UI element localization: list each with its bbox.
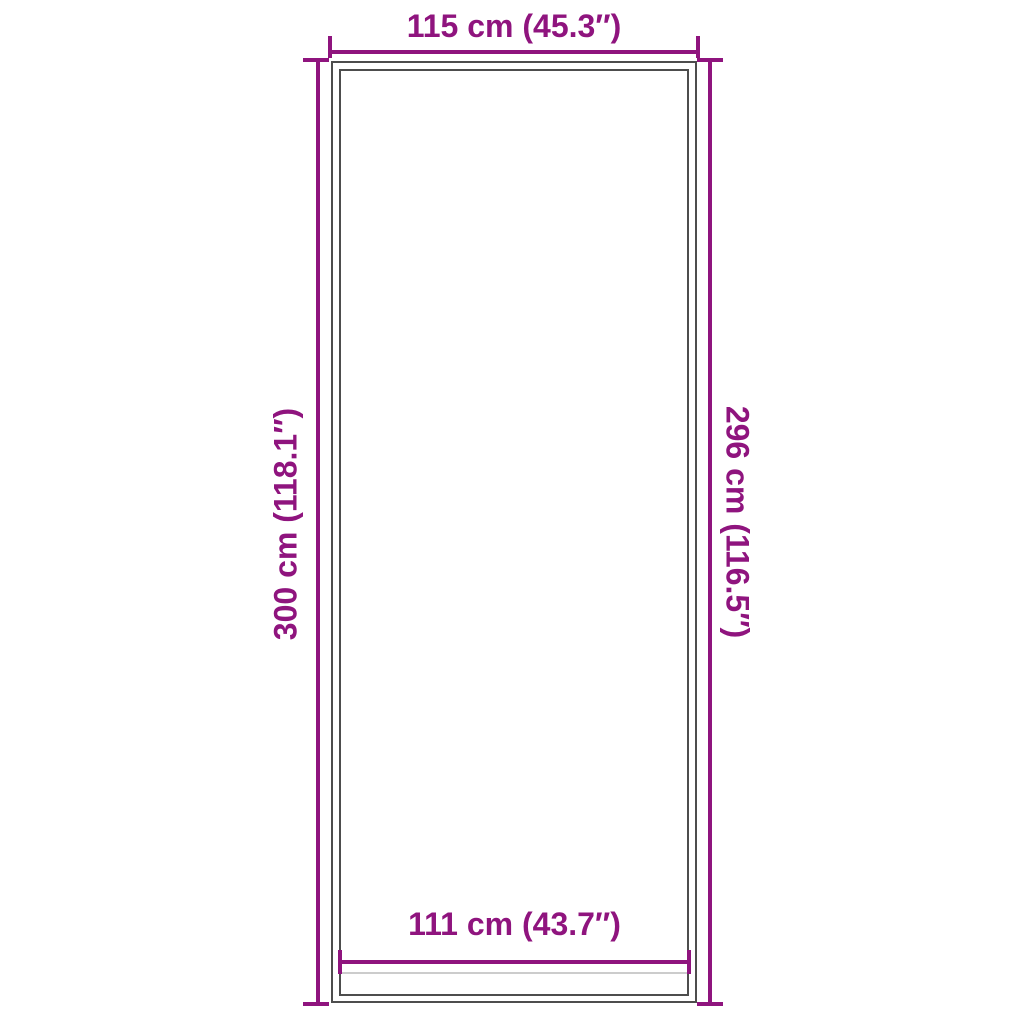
product-dimension-diagram: 115 cm (45.3″) 300 cm (118.1″) 296 cm (1… [0,0,1024,1024]
mat-fold-line [341,972,687,974]
mat-outline-inner [339,69,689,996]
dimension-tick-outer-height-top [303,58,329,62]
dimension-line-inner-height [708,58,712,1006]
dimension-label-inner-height: 296 cm (116.5″) [719,406,756,638]
dimension-line-outer-height [316,58,320,1006]
dimension-tick-outer-width-right [696,36,700,58]
dimension-tick-outer-height-bottom [303,1002,329,1006]
dimension-tick-inner-height-top [697,58,723,62]
dimension-tick-inner-height-bottom [697,1002,723,1006]
dimension-tick-outer-width-left [328,36,332,58]
dimension-label-outer-width: 115 cm (45.3″) [328,8,700,44]
dimension-line-inner-width [338,960,691,964]
dimension-label-inner-width: 111 cm (43.7″) [338,904,691,944]
dimension-tick-inner-width-left [338,950,342,974]
dimension-label-outer-height: 300 cm (118.1″) [268,408,305,640]
dimension-line-outer-width [328,50,700,54]
dimension-tick-inner-width-right [687,950,691,974]
